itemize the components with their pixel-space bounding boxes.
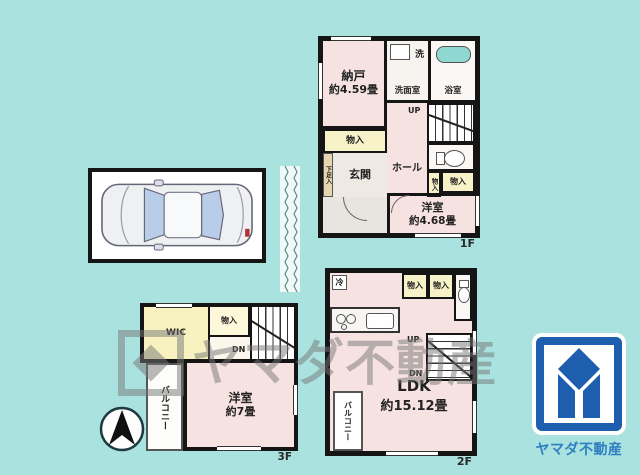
closet-1f-right: 物入 [441, 171, 475, 193]
shoe-cabinet-label: 下足入 [324, 166, 333, 184]
stove-icon [336, 314, 346, 324]
window [475, 196, 480, 226]
yoshitsu-1f-label: 洋室 [422, 202, 444, 215]
ldk-label: LDK [364, 377, 464, 395]
stove-icon [346, 314, 356, 324]
dn-label-3f: DN [232, 345, 245, 354]
closet-2f-a: 物入 [402, 273, 428, 299]
closet-3f: 物入 [210, 307, 250, 337]
company-logo: ヤマダ不動産 [527, 332, 631, 459]
window [331, 36, 371, 41]
balcony-2f: バルコニー [333, 391, 363, 451]
room-nando: 納戸 約4.59畳 [323, 41, 387, 129]
floorplan-canvas: 納戸 約4.59畳 洗面室 洗 浴室 UP 物入 下足入 玄関 [0, 0, 640, 475]
stair-direction-line [250, 319, 294, 351]
company-name: ヤマダ不動産 [536, 439, 623, 459]
balcony-3f: バルコニー [146, 363, 183, 451]
window [386, 451, 438, 456]
nando-label: 納戸 [341, 70, 365, 84]
window [472, 331, 477, 355]
window [318, 63, 323, 99]
window [293, 385, 298, 415]
yoshitsu-3f-size: 約7畳 [226, 406, 256, 419]
stair-direction-line [429, 114, 475, 134]
ldk-size: 約15.12畳 [364, 395, 464, 414]
senmenshitsu-label: 洗面室 [395, 87, 421, 97]
north-arrow-icon [97, 404, 147, 454]
room-yoshitsu-3f: 洋室 約7畳 3F [183, 359, 298, 451]
fridge-label: 冷 [336, 277, 344, 288]
stairs-up-1f [427, 103, 475, 143]
shoe-cabinet: 下足入 [323, 153, 333, 197]
parking-space [88, 168, 266, 263]
toilet-room-2f [454, 273, 472, 321]
room-wic: WIC [144, 307, 210, 359]
closet-2f-a-label: 物入 [407, 281, 423, 290]
yoshitsu-3f-labels: 洋室 約7畳 [187, 363, 294, 447]
floorplan-3f-top: WIC 物入 DN [140, 303, 298, 363]
wic-label: WIC [166, 328, 186, 338]
toilet-icon [444, 150, 465, 167]
floorplan-1f: 納戸 約4.59畳 洗面室 洗 浴室 UP 物入 下足入 玄関 [318, 36, 480, 238]
closet-2f-b: 物入 [428, 273, 454, 299]
genkan-label: 玄関 [349, 169, 371, 182]
kitchen-sink-icon [366, 313, 394, 329]
up-label-1f: UP [408, 106, 420, 115]
hall-label: ホール [387, 159, 427, 174]
room-genkan: 玄関 [333, 153, 387, 197]
laundry-mark: 洗 [415, 47, 424, 60]
window [472, 401, 477, 433]
closet-1f-left: 物入 [323, 129, 387, 153]
balcony-2f-label: バルコニー [343, 401, 354, 441]
floor-label-1f: 1F [460, 237, 475, 250]
floor-label-2f: 2F [457, 455, 472, 468]
stair-direction-line [427, 340, 472, 381]
car-icon [99, 179, 255, 251]
bathtub-icon [436, 46, 471, 63]
sink-icon [390, 44, 410, 60]
closet-right-label: 物入 [450, 177, 466, 186]
up-label-2f: UP [407, 335, 419, 344]
kitchen-counter [330, 307, 400, 333]
yoshitsu-1f-size: 約4.68畳 [409, 215, 456, 227]
yoshitsu-3f-label: 洋室 [228, 392, 252, 406]
yamada-logo-mark-icon [531, 332, 627, 436]
stairs-2f [426, 333, 472, 381]
yokushitsu-label: 浴室 [444, 87, 461, 97]
floor-label-3f: 3F [278, 451, 292, 463]
floorplan-2f: 冷 物入 物入 UP DN LDK 約15.12畳 バルコニー [325, 268, 477, 456]
toilet-room-1f [427, 143, 475, 171]
window [156, 303, 192, 308]
closet-3f-label: 物入 [221, 316, 237, 325]
window [415, 233, 461, 238]
stove-icon [341, 324, 347, 330]
nando-size: 約4.59畳 [329, 84, 378, 97]
break-line-icon [280, 166, 300, 292]
window [217, 446, 261, 451]
toilet-icon [458, 287, 470, 303]
stairs-down-3f [250, 307, 294, 359]
closet-2f-b-label: 物入 [433, 281, 449, 290]
closet-small-label: 物入 [429, 178, 439, 191]
closet-label: 物入 [346, 136, 364, 146]
room-ldk: LDK 約15.12畳 [364, 377, 464, 414]
balcony-3f-label: バルコニー [158, 385, 171, 430]
fridge-mark: 冷 [332, 275, 347, 290]
